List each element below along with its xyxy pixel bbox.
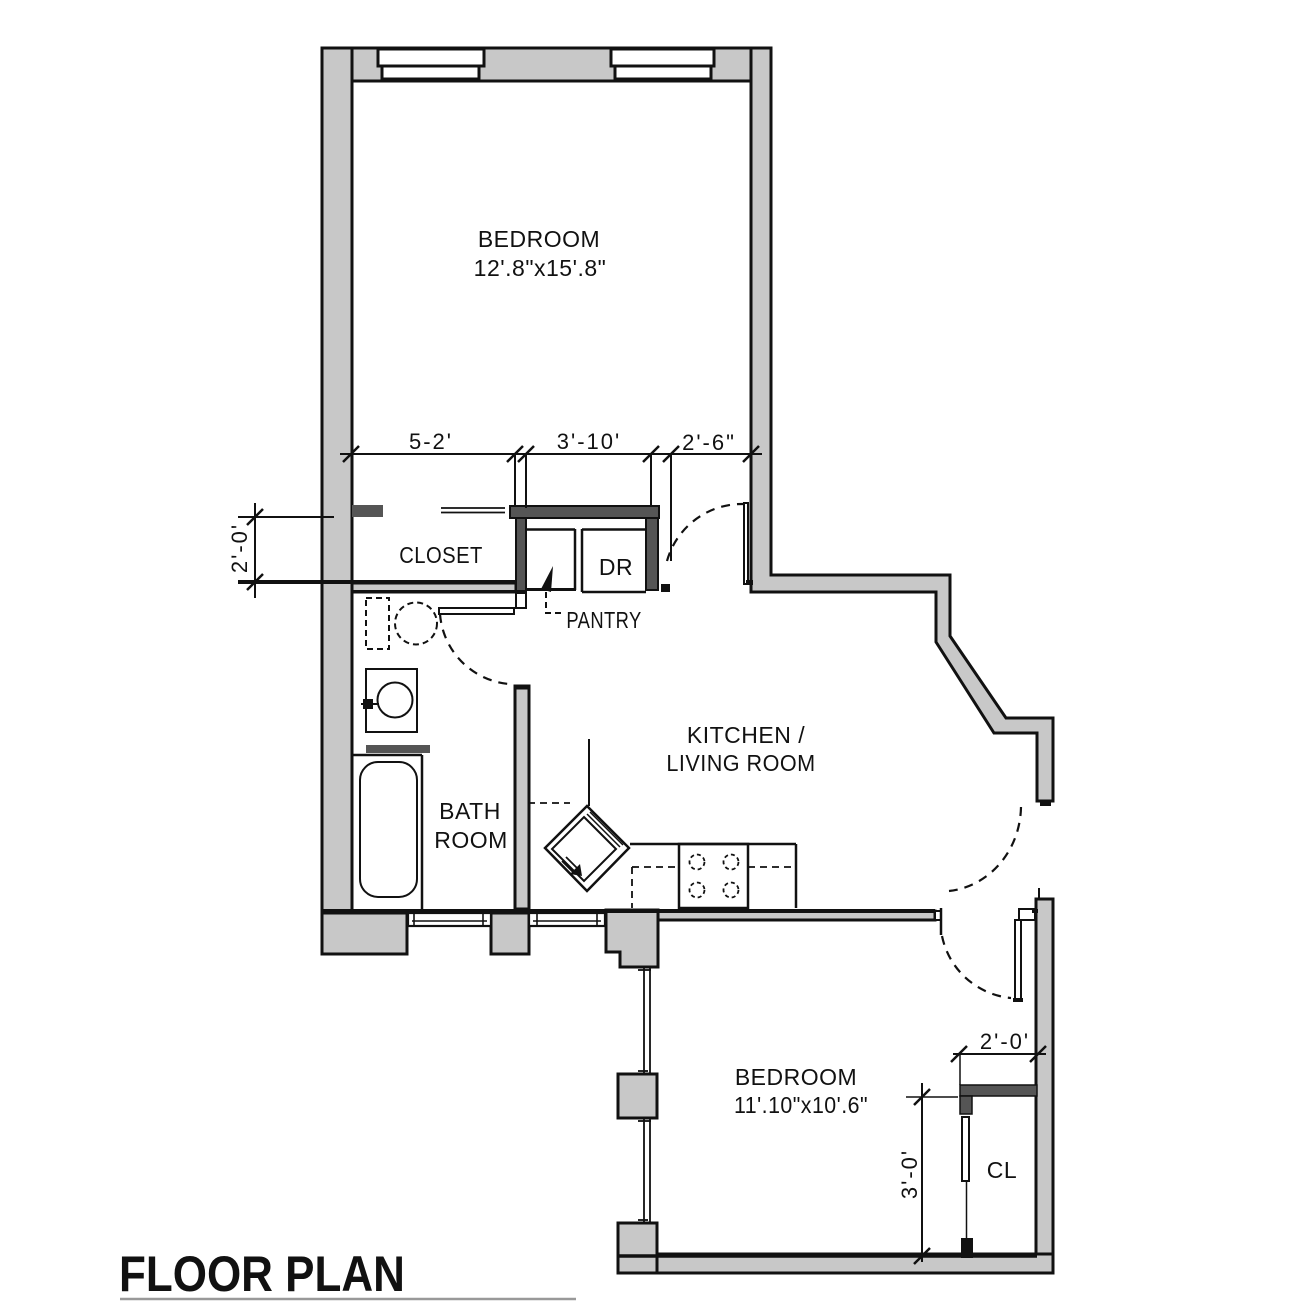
svg-text:CL: CL (987, 1157, 1017, 1183)
svg-text:11'.10"x10'.6": 11'.10"x10'.6" (734, 1092, 868, 1118)
svg-text:ROOM: ROOM (434, 827, 508, 853)
svg-text:LIVING ROOM: LIVING ROOM (666, 750, 815, 776)
svg-text:FLOOR PLAN: FLOOR PLAN (119, 1245, 405, 1301)
svg-text:2'-0': 2'-0' (980, 1029, 1030, 1054)
svg-text:BEDROOM: BEDROOM (735, 1064, 857, 1090)
svg-text:CLOSET: CLOSET (399, 542, 483, 569)
svg-text:KITCHEN /: KITCHEN / (687, 722, 805, 748)
svg-text:BEDROOM: BEDROOM (478, 226, 600, 252)
svg-text:2'-0': 2'-0' (227, 523, 252, 573)
svg-text:3'-10': 3'-10' (557, 429, 621, 454)
svg-text:PANTRY: PANTRY (566, 608, 641, 633)
svg-text:BATH: BATH (439, 798, 501, 824)
svg-text:DR: DR (599, 554, 633, 580)
svg-text:5-2': 5-2' (409, 429, 453, 454)
svg-text:2'-6": 2'-6" (682, 430, 736, 455)
svg-text:3'-0': 3'-0' (897, 1149, 922, 1199)
svg-text:12'.8"x15'.8": 12'.8"x15'.8" (474, 255, 607, 281)
